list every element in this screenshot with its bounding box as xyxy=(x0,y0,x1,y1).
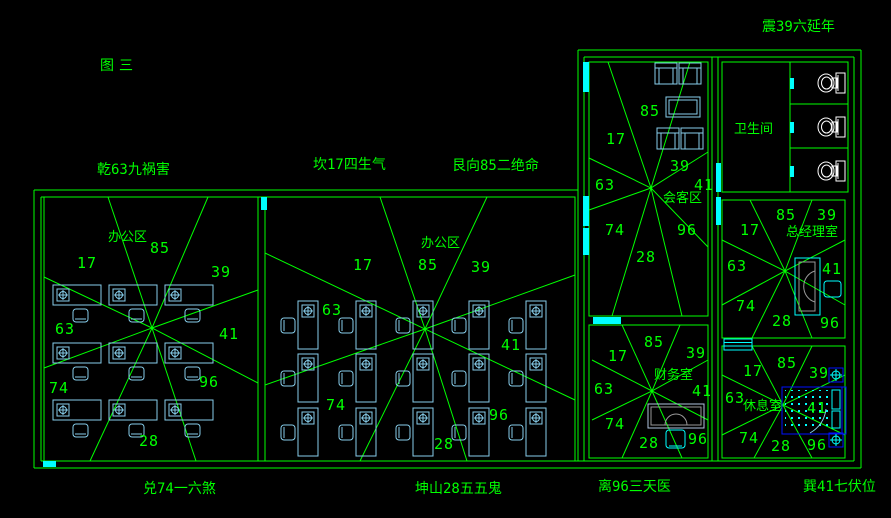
sector-number: 63 xyxy=(322,302,342,319)
sector-number: 96 xyxy=(677,222,697,239)
sector-number: 28 xyxy=(636,249,656,266)
compass-label-qian: 乾63九祸害 xyxy=(97,163,170,178)
sector-number: 85 xyxy=(644,334,664,351)
sector-number: 28 xyxy=(639,435,659,452)
sector-number: 74 xyxy=(49,380,69,397)
sector-number: 41 xyxy=(807,400,827,417)
sector-number: 41 xyxy=(694,177,714,194)
sector-number: 17 xyxy=(606,131,626,148)
sector-number: 17 xyxy=(77,255,97,272)
compass-label-gen: 艮向85二绝命 xyxy=(452,159,539,174)
room-label-rest: 休息室 xyxy=(743,400,782,414)
sector-number: 41 xyxy=(692,383,712,400)
sector-number: 39 xyxy=(471,259,491,276)
compass-label-kan: 坎17四生气 xyxy=(313,158,386,173)
sector-number: 63 xyxy=(55,321,75,338)
sector-number: 74 xyxy=(739,430,759,447)
sector-number: 39 xyxy=(809,365,829,382)
sector-number: 28 xyxy=(772,313,792,330)
sector-number: 96 xyxy=(489,407,509,424)
sector-number: 96 xyxy=(807,437,827,454)
sector-number: 74 xyxy=(605,416,625,433)
sector-number: 17 xyxy=(740,222,760,239)
sector-number: 17 xyxy=(608,348,628,365)
sector-number: 85 xyxy=(418,257,438,274)
compass-label-li: 离96三天医 xyxy=(598,480,671,495)
compass-label-dui: 兑74一六煞 xyxy=(143,482,216,497)
room-label-office-left: 办公区 xyxy=(108,231,147,245)
meeting-table xyxy=(666,97,700,117)
sector-number: 28 xyxy=(434,436,454,453)
sector-number: 39 xyxy=(670,158,690,175)
sector-number: 41 xyxy=(501,337,521,354)
sector-number: 96 xyxy=(199,374,219,391)
office-mid-desks xyxy=(281,301,546,456)
room-label-meeting: 会客区 xyxy=(663,192,702,206)
sector-number: 39 xyxy=(211,264,231,281)
sector-number: 85 xyxy=(776,207,796,224)
sector-number: 74 xyxy=(736,298,756,315)
sector-number: 41 xyxy=(219,326,239,343)
sector-number: 63 xyxy=(725,390,745,407)
bathroom-toilets xyxy=(818,73,845,181)
sector-number: 39 xyxy=(686,345,706,362)
compass-label-xun: 巽41七伏位 xyxy=(803,480,876,495)
compass-label-kun: 坤山28五五鬼 xyxy=(415,482,502,497)
sector-number: 63 xyxy=(727,258,747,275)
sector-number: 63 xyxy=(595,177,615,194)
sector-number: 39 xyxy=(817,207,837,224)
sector-number: 85 xyxy=(777,355,797,372)
room-label-office-mid: 办公区 xyxy=(421,237,460,251)
sector-number: 96 xyxy=(688,431,708,448)
meeting-room-furniture xyxy=(655,63,703,149)
sector-number: 41 xyxy=(822,261,842,278)
office-left-desks xyxy=(53,285,213,437)
floor-plan-canvas: 图三 震39六延年 乾63九祸害 坎17四生气 艮向85二绝命 兑74一六煞 坤… xyxy=(0,0,891,518)
sector-number: 85 xyxy=(150,240,170,257)
sector-number: 28 xyxy=(139,433,159,450)
star-office-mid xyxy=(265,197,575,461)
compass-label-zhen: 震39六延年 xyxy=(762,20,835,35)
sector-number: 28 xyxy=(771,438,791,455)
sector-number: 74 xyxy=(605,222,625,239)
figure-label: 图三 xyxy=(100,59,138,74)
sector-number: 96 xyxy=(820,315,840,332)
room-label-bathroom: 卫生间 xyxy=(734,123,773,137)
sector-number: 17 xyxy=(353,257,373,274)
sector-number: 74 xyxy=(326,397,346,414)
sector-number: 63 xyxy=(594,381,614,398)
sector-number: 17 xyxy=(743,363,763,380)
sector-number: 85 xyxy=(640,103,660,120)
room-label-finance: 财务室 xyxy=(654,369,693,383)
room-label-manager: 总经理室 xyxy=(786,226,838,240)
